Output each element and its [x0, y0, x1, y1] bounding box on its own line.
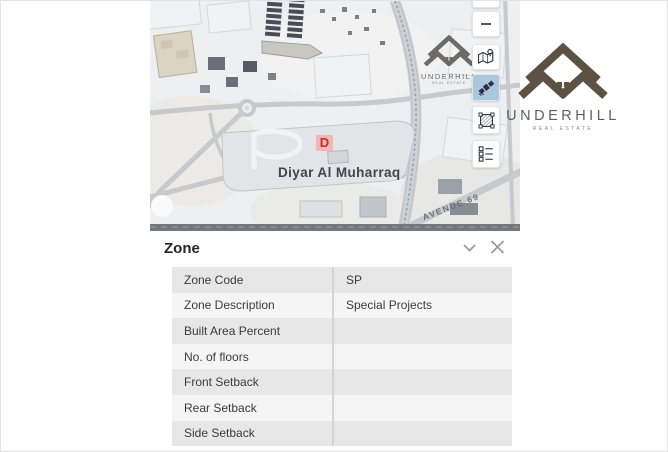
zone-table-row: Zone CodeSP [172, 267, 512, 293]
zone-row-label: No. of floors [172, 350, 332, 364]
column-divider [332, 369, 334, 395]
satellite-button[interactable] [472, 74, 500, 101]
satellite-icon [477, 78, 496, 97]
zoom-in-button[interactable] [472, 1, 500, 8]
watermark-roofs-icon [420, 32, 478, 66]
legend-button[interactable] [472, 140, 500, 168]
zoom-out-button[interactable] [472, 11, 500, 37]
close-panel-button[interactable] [489, 239, 506, 255]
column-divider [332, 421, 334, 447]
zone-attributes-table: Zone CodeSPZone DescriptionSpecial Proje… [172, 267, 512, 446]
zone-row-label: Front Setback [172, 375, 332, 389]
satellite-map[interactable]: UNDERHILL REAL ESTATE D Diyar Al Muharra… [150, 1, 520, 231]
zone-row-label: Zone Description [172, 298, 332, 312]
logo-name: UNDERHILL [498, 108, 628, 124]
zone-row-value: Special Projects [334, 298, 512, 312]
zone-table-row: Zone DescriptionSpecial Projects [172, 293, 512, 319]
zone-row-label: Rear Setback [172, 401, 332, 415]
parcel-marker[interactable]: D [316, 135, 333, 151]
legend-list-icon [477, 145, 495, 163]
parcel-net-button[interactable] [472, 106, 500, 134]
underhill-logo: UNDERHILL REAL ESTATE [498, 37, 628, 132]
column-divider [332, 344, 334, 370]
zone-row-label: Side Setback [172, 426, 332, 440]
logo-roofs-icon [513, 37, 613, 99]
zone-table-row: Rear Setback [172, 395, 512, 421]
zone-panel: Zone Zone CodeSPZone DescriptionSpecial … [150, 231, 520, 452]
logo-tagline: REAL ESTATE [498, 126, 628, 132]
collapse-panel-button[interactable] [461, 241, 478, 255]
zone-panel-header: Zone [150, 231, 520, 267]
zone-row-label: Built Area Percent [172, 324, 332, 338]
zone-panel-title: Zone [164, 240, 200, 257]
screenshot-frame: UNDERHILL REAL ESTATE D Diyar Al Muharra… [0, 0, 668, 452]
zone-table-row: Front Setback [172, 369, 512, 395]
map-toolbar [472, 1, 500, 231]
zone-table-row: Built Area Percent [172, 318, 512, 344]
column-divider [332, 318, 334, 344]
zone-table-row: Side Setback [172, 421, 512, 447]
zone-row-value: SP [334, 273, 512, 287]
column-divider [332, 395, 334, 421]
map-pin-icon [477, 48, 495, 66]
chevron-down-icon [461, 241, 478, 255]
zone-table-row: No. of floors [172, 344, 512, 370]
close-icon [489, 239, 506, 255]
net-grid-icon [477, 111, 496, 130]
minus-icon [478, 16, 494, 32]
place-name-label: Diyar Al Muharraq [278, 165, 401, 180]
zone-row-label: Zone Code [172, 273, 332, 287]
basemap-button[interactable] [472, 44, 500, 70]
